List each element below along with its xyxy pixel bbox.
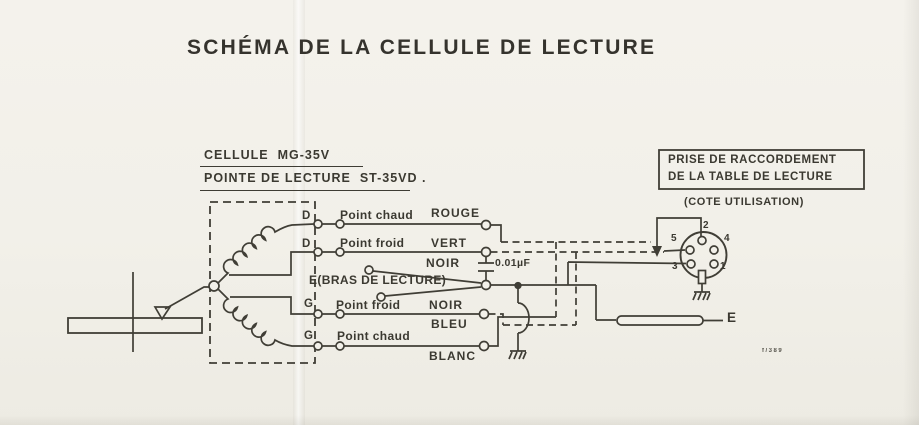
coil-left-channel	[218, 289, 314, 346]
wire-vert	[322, 250, 685, 252]
wire-desc-right-cold: Point froid	[340, 237, 404, 250]
pin-label-3: 3	[672, 262, 678, 273]
capacitor-icon	[478, 257, 494, 281]
terminal-label-g2: G	[304, 330, 313, 342]
connector-subtitle: (COTE UTILISATION)	[684, 197, 804, 209]
coil-right-channel	[218, 224, 314, 283]
wire-color-vert: VERT	[431, 237, 467, 250]
pin-label-1: 1	[720, 262, 726, 273]
connector-title-line1: PRISE DE RACCORDEMENT	[668, 154, 837, 166]
ground-icon	[693, 292, 710, 300]
underline	[200, 190, 410, 191]
scanned-schematic-page: SCHÉMA DE LA CELLULE DE LECTURE CELLULE …	[0, 0, 919, 425]
page-title: SCHÉMA DE LA CELLULE DE LECTURE	[187, 37, 656, 59]
ground-icon	[509, 351, 526, 359]
wire-color-noir: NOIR	[429, 299, 463, 312]
connector-title-line2: DE LA TABLE DE LECTURE	[668, 171, 833, 183]
underline	[200, 166, 363, 167]
capacitor-value-label: 0.01µF	[495, 258, 530, 269]
wire-desc-right-hot: Point chaud	[340, 209, 413, 222]
terminal-label-d2: D	[302, 238, 311, 250]
connector-key-notch	[699, 271, 706, 284]
arm-earth-label: E(BRAS DE LECTURE)	[309, 274, 446, 287]
wire-color-blanc: BLANC	[429, 350, 476, 363]
stylus-model-label: POINTE DE LECTURE ST-35VD .	[204, 172, 426, 185]
pin-label-5: 5	[671, 234, 677, 245]
earth-output-label: E	[727, 311, 736, 325]
terminal-label-g1: G	[304, 298, 313, 310]
cartridge-dashed-box	[210, 202, 315, 363]
wire-desc-left-cold: Point froid	[336, 299, 400, 312]
cartridge-model-label: CELLULE MG-35V	[204, 149, 330, 162]
terminal-label-d1: D	[302, 210, 311, 222]
wire-color-rouge: ROUGE	[431, 207, 480, 220]
wire-color-noir-arm: NOIR	[426, 257, 460, 270]
record-and-stylus	[68, 272, 219, 352]
shielded-cable	[617, 316, 723, 325]
wire-desc-left-hot: Point chaud	[337, 330, 410, 343]
pin-label-2: 2	[703, 221, 709, 232]
pin-label-4: 4	[724, 234, 730, 245]
wire-color-bleu: BLEU	[431, 318, 468, 331]
tiny-print-footnote: f/389	[762, 348, 783, 354]
